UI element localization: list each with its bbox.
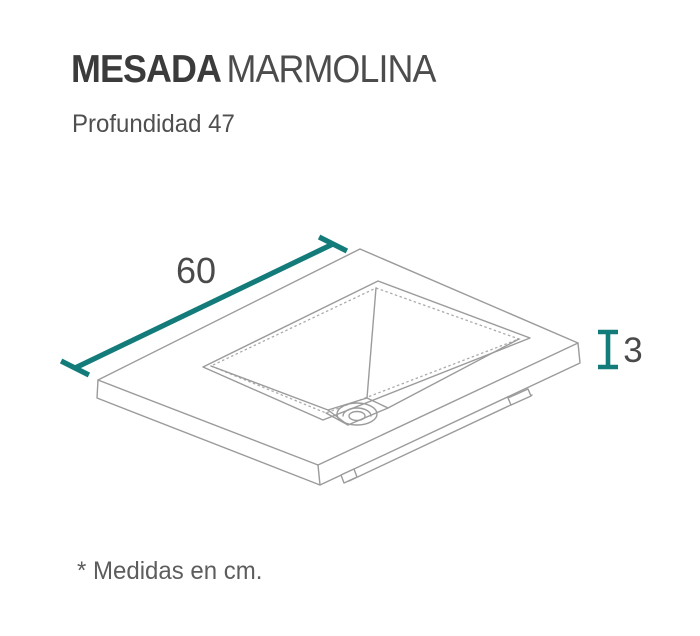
thickness-dimension-label: 3 <box>623 331 642 370</box>
units-footnote: * Medidas en cm. <box>77 557 262 586</box>
countertop-outline <box>97 249 580 485</box>
diagram-svg: 60 3 <box>0 0 700 636</box>
width-dimension-label: 60 <box>176 250 216 291</box>
product-diagram: 60 3 <box>0 0 700 636</box>
foot-tab-front <box>341 469 357 483</box>
page: MESADAMARMOLINA Profundidad 47 <box>0 0 700 636</box>
thickness-dimension-marker <box>598 332 618 367</box>
